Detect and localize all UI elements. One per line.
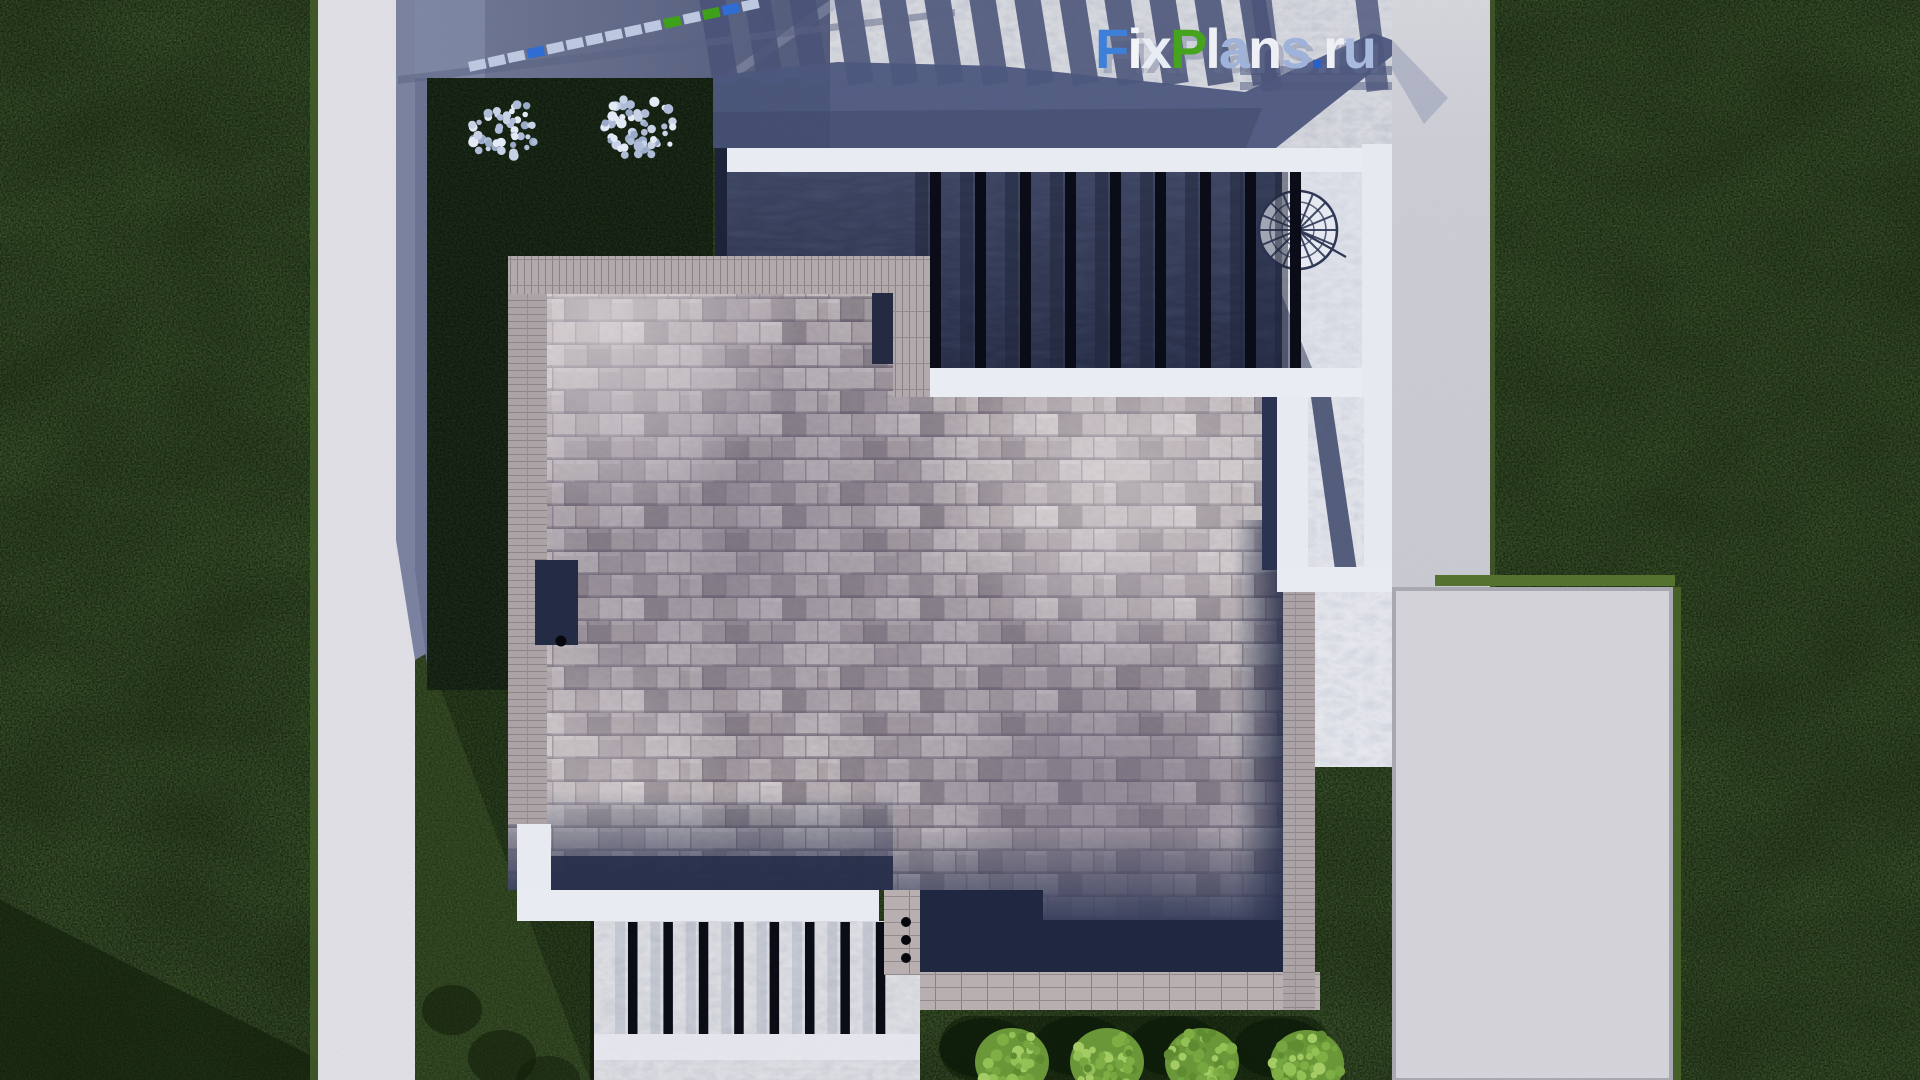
- svg-text:FixPlans.ru: FixPlans.ru: [1095, 17, 1375, 80]
